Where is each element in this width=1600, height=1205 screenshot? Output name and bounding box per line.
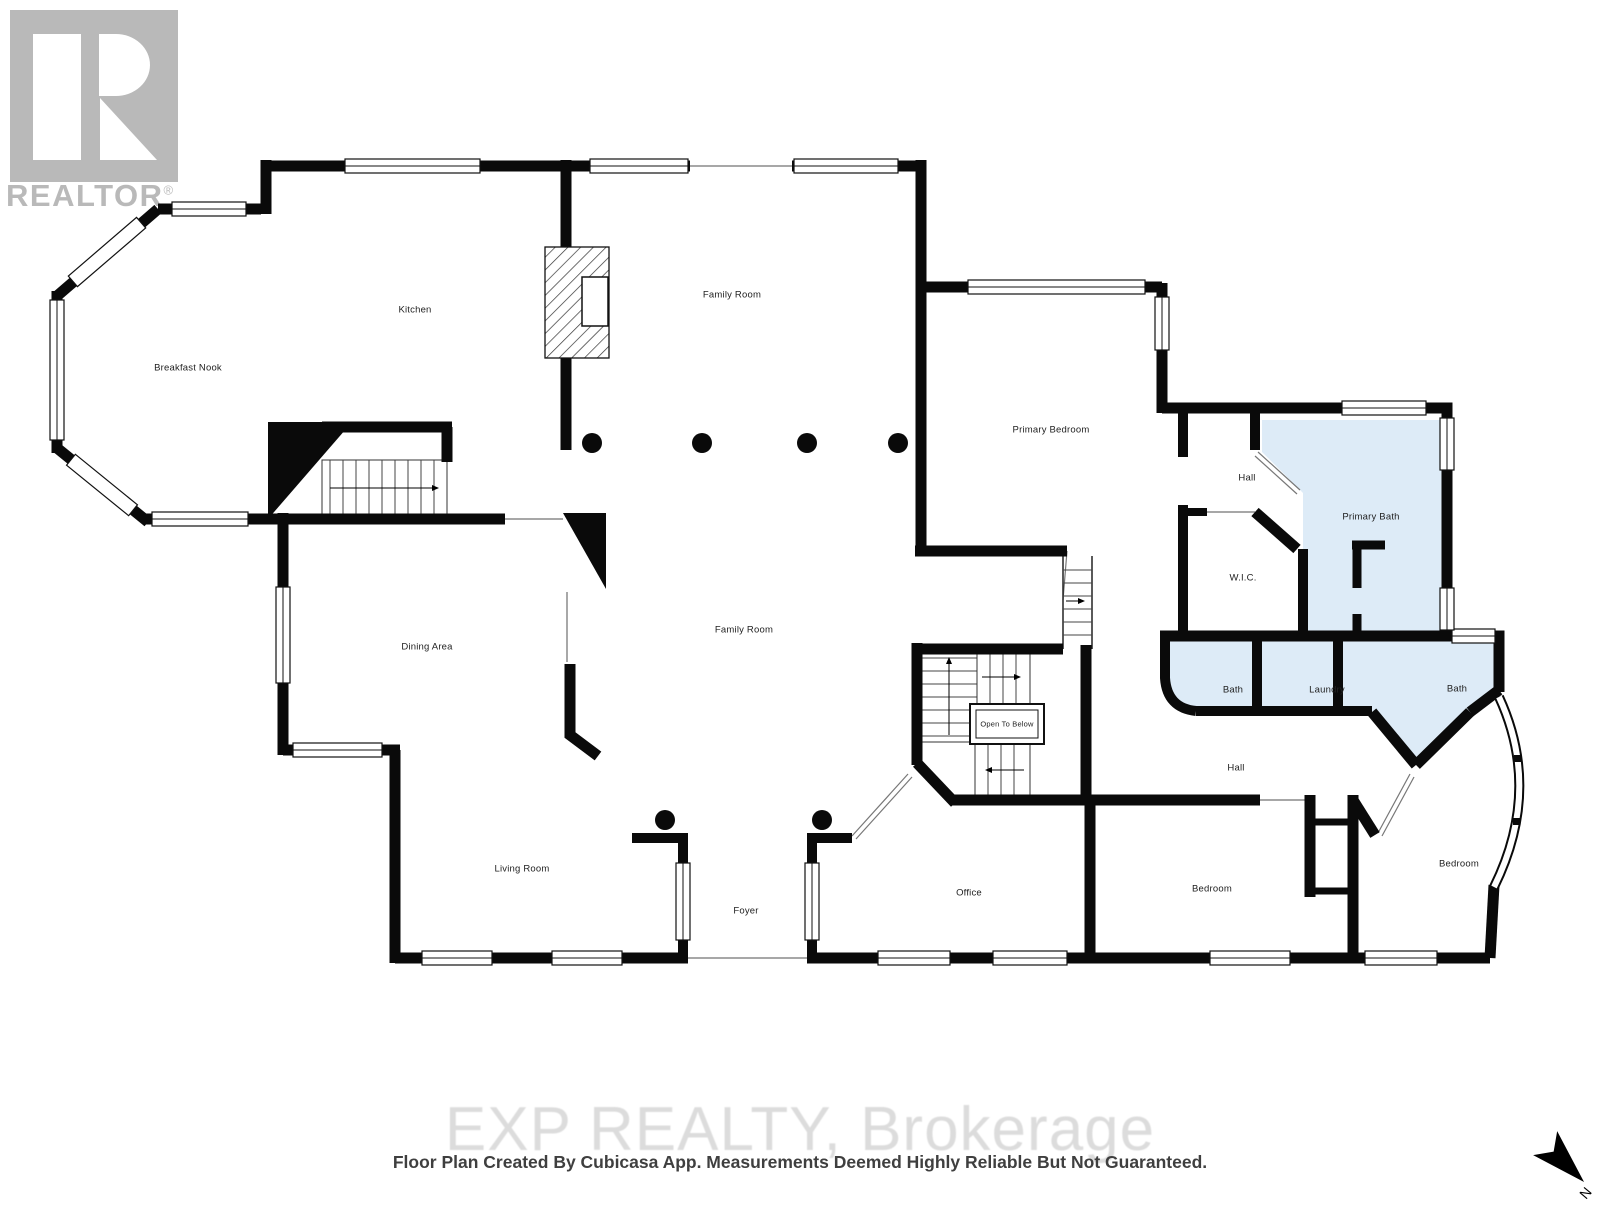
fireplace-icon [545, 247, 609, 358]
windows [50, 159, 1495, 965]
floor-plan-drawing: N [0, 0, 1600, 1205]
room-label-bath-right: Bath [1447, 684, 1467, 695]
compass-north-icon: N [1533, 1131, 1596, 1202]
bay-window [1494, 697, 1521, 887]
room-label-hall-upper: Hall [1238, 473, 1255, 484]
room-label-family-room-lower: Family Room [715, 625, 773, 636]
room-label-foyer: Foyer [733, 906, 758, 917]
floorplan-screenshot: REALTOR® [0, 0, 1600, 1205]
room-label-open-to-below: Open To Below [980, 720, 1033, 729]
room-label-hall-lower: Hall [1227, 763, 1244, 774]
room-label-dining-area: Dining Area [401, 642, 452, 653]
room-label-living-room: Living Room [494, 864, 549, 875]
room-label-bedroom-left: Bedroom [1192, 884, 1232, 895]
room-label-breakfast-nook: Breakfast Nook [154, 363, 222, 374]
compass-n-label: N [1576, 1184, 1595, 1202]
room-label-office: Office [956, 888, 982, 899]
room-label-wic: W.I.C. [1229, 573, 1256, 584]
room-label-family-room-upper: Family Room [703, 290, 761, 301]
room-label-kitchen: Kitchen [398, 305, 431, 316]
disclaimer-text: Floor Plan Created By Cubicasa App. Meas… [393, 1152, 1207, 1173]
room-label-bedroom-right: Bedroom [1439, 859, 1479, 870]
angled-wall-wedges [268, 422, 606, 589]
room-label-laundry: Laundry [1309, 685, 1345, 696]
room-label-primary-bath: Primary Bath [1342, 512, 1399, 523]
walls [57, 160, 1499, 963]
room-label-primary-bedroom: Primary Bedroom [1013, 425, 1090, 436]
stairs [322, 460, 1092, 797]
room-label-bath-left: Bath [1223, 685, 1243, 696]
